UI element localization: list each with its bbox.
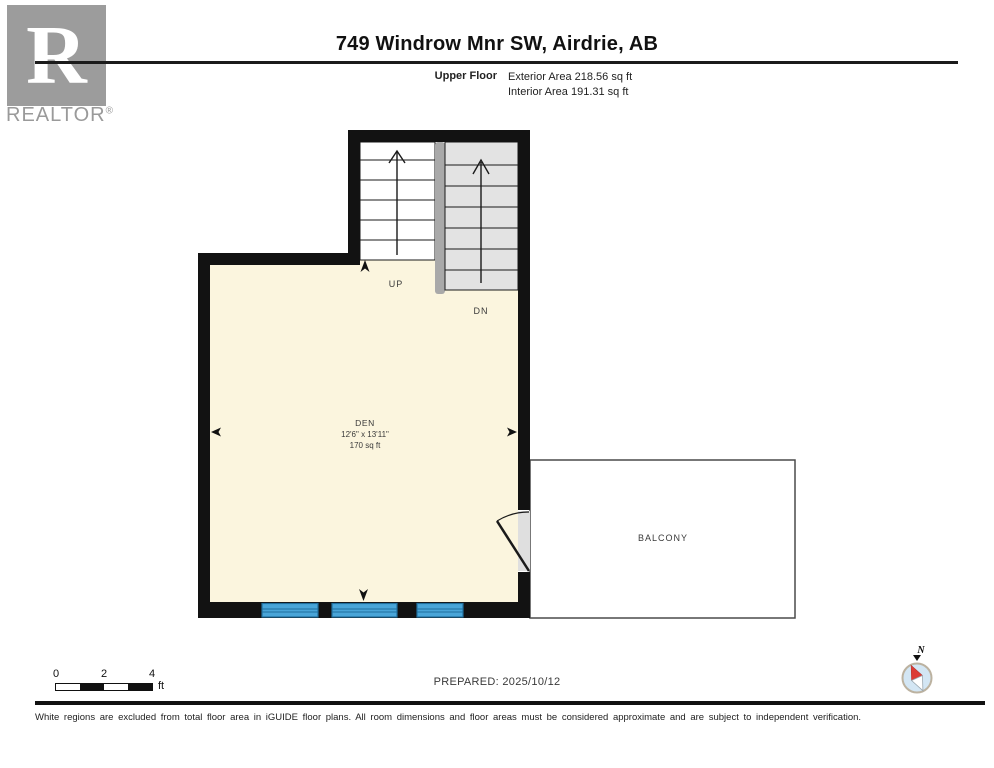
compass-north-label: N [916,645,925,656]
footer-divider [35,701,985,705]
window-2 [332,604,397,618]
wall-stair-top [348,130,530,142]
floor-plan: UP DN DEN 12'6" x 13'11" 170 sq ft BALCO… [0,0,994,768]
den-dimensions: 12'6" x 13'11" [341,430,389,439]
floorplan-page: R REALTOR® 749 Windrow Mnr SW, Airdrie, … [0,0,994,768]
den-area: 170 sq ft [350,441,381,450]
balcony-label: BALCONY [638,533,688,543]
wall-stair-left [348,130,360,265]
wall-left [198,253,210,618]
wall-den-top [198,253,360,265]
window-3 [417,604,463,618]
window-1 [262,604,318,618]
windows [262,604,463,618]
disclaimer-text: White regions are excluded from total fl… [35,712,985,723]
wall-right-lower [518,572,530,618]
stair-divider-rail [435,142,445,294]
wall-right-upper [518,130,530,510]
up-label: UP [389,279,404,289]
prepared-date: PREPARED: 2025/10/12 [0,676,994,688]
compass-north-marker [913,655,921,661]
dn-label: DN [474,306,489,316]
stair-down [445,142,518,290]
den-name: DEN [355,418,375,428]
stair-up [360,142,435,260]
